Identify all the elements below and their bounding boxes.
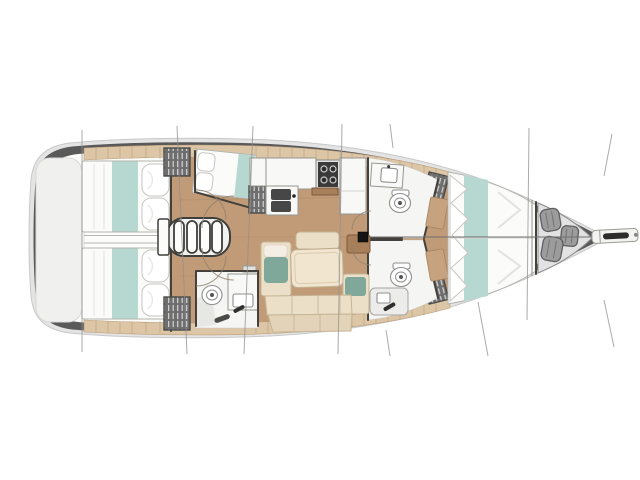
seat-pillow bbox=[264, 245, 287, 257]
bed-runner bbox=[112, 162, 138, 232]
burner-icon bbox=[321, 166, 327, 172]
stair-tread bbox=[212, 221, 222, 253]
bowsprit bbox=[592, 228, 639, 243]
faucet-icon bbox=[292, 194, 296, 198]
galley-cabinet bbox=[250, 158, 268, 186]
pillow bbox=[197, 152, 216, 172]
chart-table-return bbox=[312, 188, 338, 195]
cabin-aft-starboard bbox=[82, 248, 171, 331]
stair-landing bbox=[158, 219, 169, 255]
burner-icon bbox=[321, 177, 327, 183]
fender bbox=[540, 235, 564, 262]
burner-icon bbox=[330, 177, 336, 183]
bed-runner bbox=[112, 249, 138, 319]
stair-tread bbox=[200, 221, 210, 253]
sink-icon bbox=[271, 201, 291, 212]
companionway-stairs bbox=[158, 218, 230, 256]
swim-platform bbox=[36, 158, 82, 322]
mast-foot bbox=[358, 232, 368, 242]
head-aft bbox=[196, 266, 258, 328]
burner-icon bbox=[330, 166, 336, 172]
shower-basin bbox=[377, 293, 390, 303]
pillow bbox=[195, 172, 214, 192]
fridge-counter bbox=[340, 158, 366, 214]
settee-backrest-row bbox=[268, 314, 352, 332]
yacht-floorplan-page bbox=[0, 0, 640, 480]
galley-counter bbox=[266, 158, 316, 189]
stove-panel bbox=[318, 162, 338, 187]
yacht-floorplan-diagram bbox=[0, 0, 640, 480]
sink-icon bbox=[271, 189, 291, 200]
island-bench bbox=[296, 232, 339, 249]
basin bbox=[381, 168, 398, 183]
engine-compartment bbox=[84, 231, 168, 248]
basin bbox=[233, 294, 253, 307]
sail-locker bbox=[532, 200, 592, 276]
fender bbox=[539, 207, 562, 232]
seat-cushion bbox=[264, 257, 288, 283]
seat-cushion bbox=[345, 277, 366, 296]
stair-tread bbox=[187, 221, 197, 253]
hanging-locker bbox=[164, 148, 190, 176]
